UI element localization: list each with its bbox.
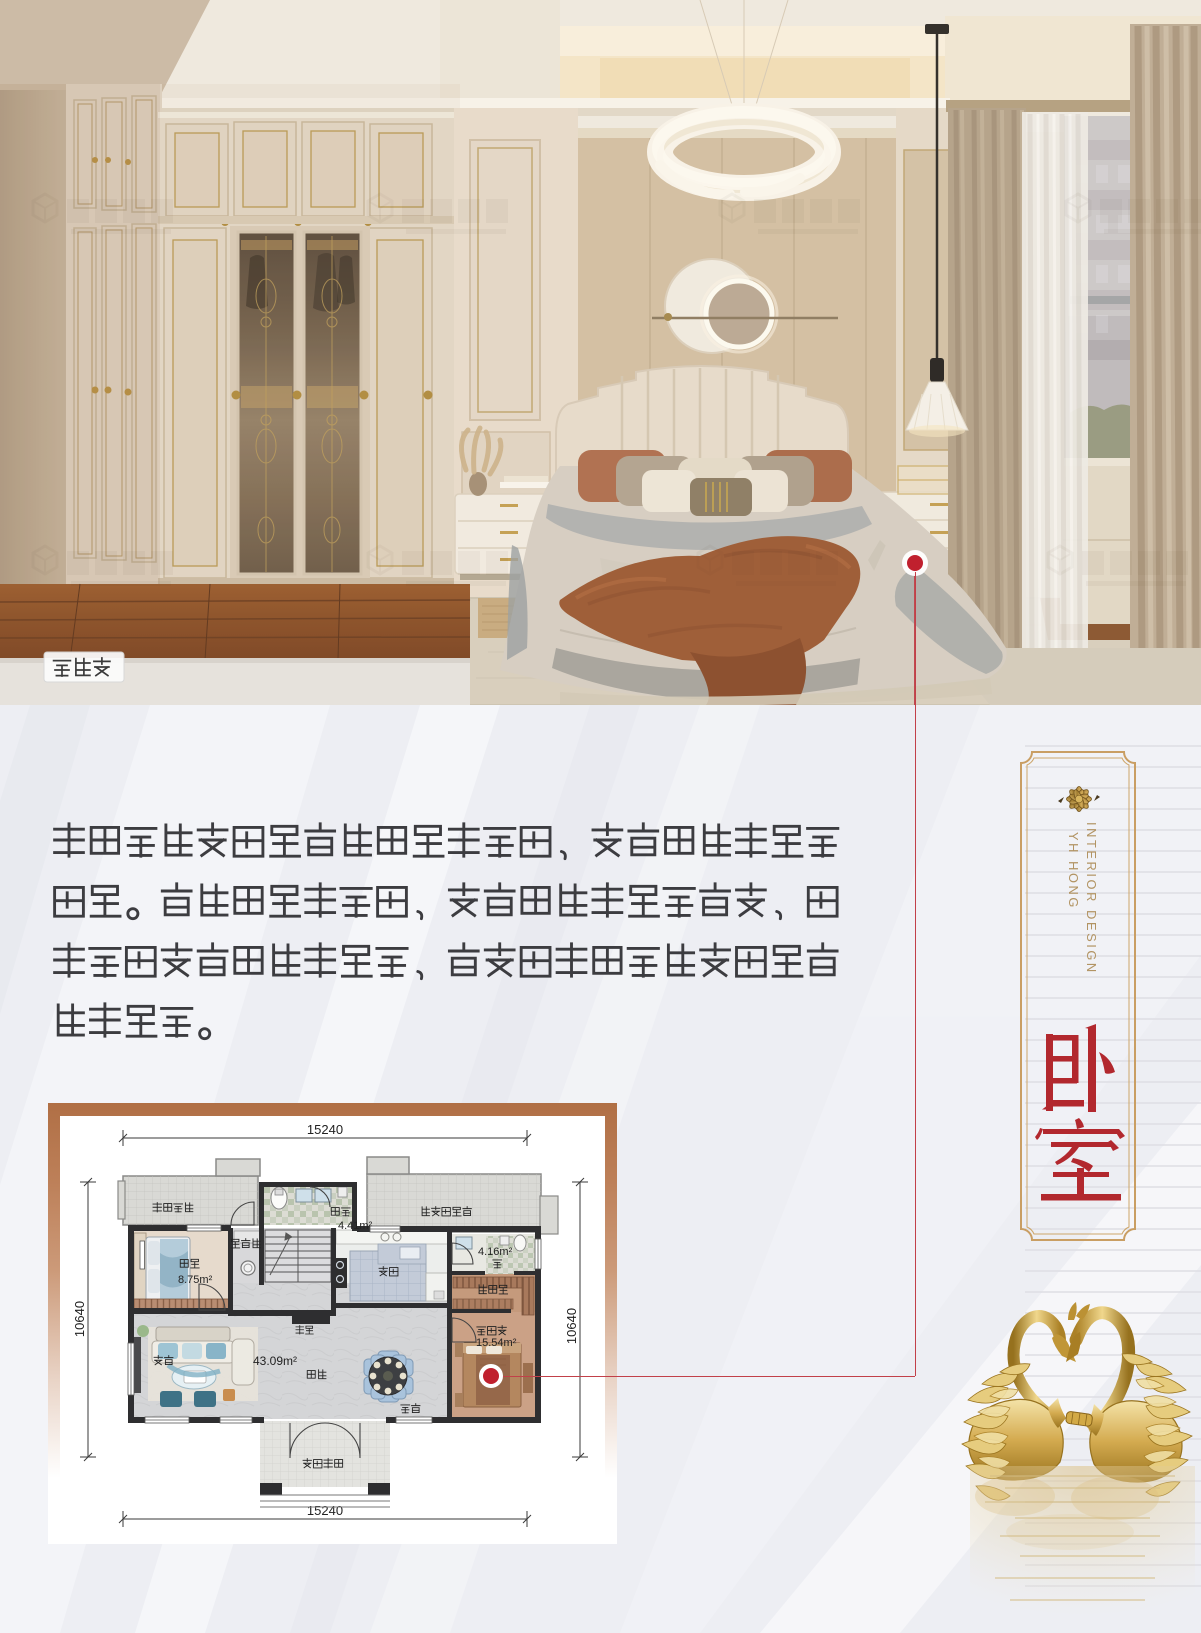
svg-text:INTERIOR DESIGN: INTERIOR DESIGN bbox=[1084, 822, 1099, 975]
svg-text:15.54m²: 15.54m² bbox=[476, 1337, 517, 1349]
svg-text:10640: 10640 bbox=[564, 1308, 579, 1344]
svg-text:10640: 10640 bbox=[72, 1301, 87, 1337]
svg-text:4.16m²: 4.16m² bbox=[478, 1246, 513, 1258]
svg-text:15240: 15240 bbox=[307, 1122, 343, 1137]
svg-text:4.41m²: 4.41m² bbox=[338, 1220, 373, 1232]
svg-text:43.09m²: 43.09m² bbox=[253, 1354, 297, 1368]
svg-text:8.75m²: 8.75m² bbox=[178, 1274, 213, 1286]
svg-text:15240: 15240 bbox=[307, 1503, 343, 1518]
svg-text:YH HONG: YH HONG bbox=[1066, 832, 1081, 910]
